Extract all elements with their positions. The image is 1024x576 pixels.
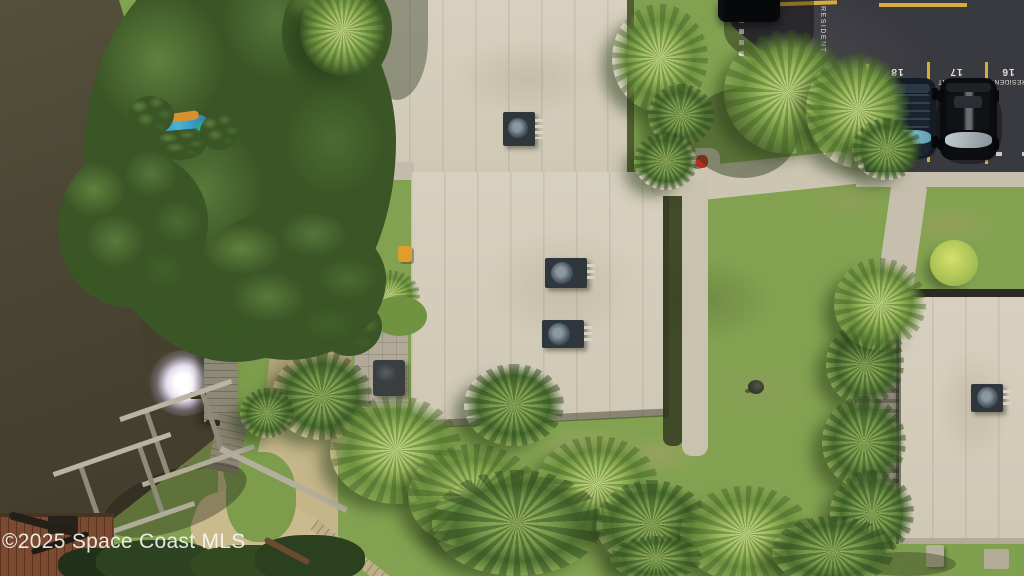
rooftop-ac-unit <box>545 258 587 288</box>
round-bush <box>930 240 978 286</box>
wheel <box>993 90 999 102</box>
wheel <box>993 138 999 150</box>
rooftop-ac-unit <box>542 320 584 348</box>
shore-palm <box>240 388 294 438</box>
rooftop-ac-unit <box>971 384 1003 412</box>
yard-sprinkler <box>748 380 764 394</box>
sedan-black <box>940 78 997 160</box>
grill-unit <box>373 360 405 396</box>
sedan-rear-window <box>946 83 991 92</box>
concrete-step <box>984 549 1009 569</box>
yellow-curb-line <box>879 3 967 7</box>
palm-bush <box>772 516 894 576</box>
orange-equipment <box>398 246 412 262</box>
palm-bush <box>464 364 564 446</box>
watermark: ©2025 Space Coast MLS <box>2 530 246 554</box>
rooftop-ac-unit <box>503 112 535 146</box>
wheel <box>938 90 944 102</box>
ac-fan <box>548 323 570 345</box>
ac-fan <box>508 118 528 138</box>
palm-tree-overhang <box>834 258 926 350</box>
sedan-hood <box>947 148 990 158</box>
stall-number: 16 <box>1001 67 1014 78</box>
building-side-shadow <box>663 178 683 446</box>
stall-number: 17 <box>949 67 962 78</box>
palm-bush <box>610 536 702 576</box>
sedan-sunroof <box>954 96 982 108</box>
ac-fan <box>551 262 573 284</box>
walking-path-vertical <box>682 180 708 456</box>
palm-bush <box>432 470 602 576</box>
palm-at-path-corner <box>634 132 698 190</box>
palm-cluster <box>852 118 922 180</box>
aerial-photo: RESIDENT RESIDENT 18 RESIDENT 17 RESIDEN… <box>0 0 1024 576</box>
wheel <box>938 138 944 150</box>
sedan-windshield <box>945 132 992 148</box>
ac-fan <box>977 387 998 408</box>
